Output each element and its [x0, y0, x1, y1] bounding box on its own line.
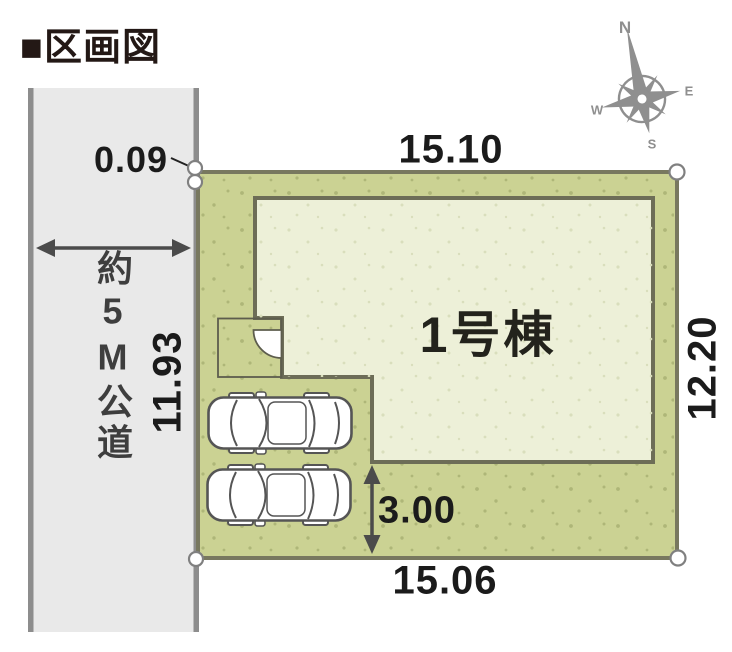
compass-north-label: N — [619, 18, 631, 38]
compass-south-label: S — [648, 137, 657, 152]
dimension-right: 12.20 — [681, 315, 726, 420]
dimension-parking-depth: 3.00 — [378, 490, 456, 533]
car-icon — [208, 464, 351, 526]
compass-rose-icon — [587, 19, 688, 141]
plot-plan-page: ■区画図 約5M公道 15.10 15.06 11.93 12.20 0.09 … — [0, 0, 732, 652]
dimension-left: 11.93 — [146, 331, 191, 434]
dimension-corner-offset: 0.09 — [94, 139, 168, 181]
compass-east-label: E — [685, 84, 694, 99]
dimension-top: 15.10 — [398, 128, 503, 173]
car-icon — [209, 392, 352, 454]
dimension-bottom: 15.06 — [392, 559, 497, 604]
building-label: 1号棟 — [420, 295, 557, 367]
compass-west-label: W — [591, 103, 603, 118]
road-label: 約5M公道 — [94, 250, 130, 465]
page-title: ■区画図 — [20, 16, 161, 71]
